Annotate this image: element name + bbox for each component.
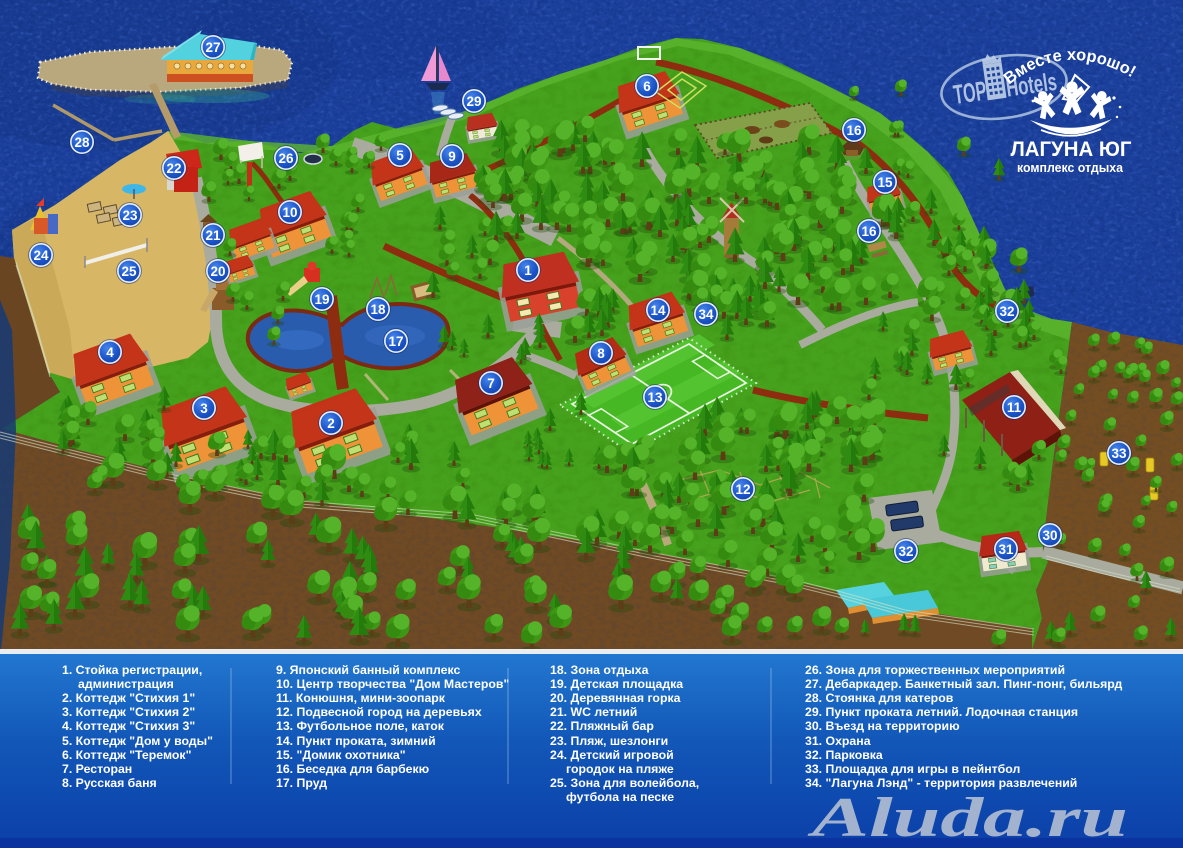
svg-text:30: 30 [1042, 528, 1057, 543]
svg-text:32: 32 [898, 544, 913, 559]
svg-text:23: 23 [122, 208, 138, 223]
svg-text:28. Стоянка для катеров: 28. Стоянка для катеров [805, 691, 954, 705]
svg-text:11: 11 [1007, 400, 1022, 415]
svg-text:12. Подвесной город на деревья: 12. Подвесной город на деревьях [276, 705, 482, 719]
svg-text:23. Пляж, шезлонги: 23. Пляж, шезлонги [550, 734, 668, 748]
svg-text:25. Зона для волейбола,: 25. Зона для волейбола, [550, 776, 699, 790]
svg-text:7. Ресторан: 7. Ресторан [62, 762, 132, 776]
svg-text:4: 4 [106, 345, 114, 360]
svg-text:34: 34 [698, 307, 714, 322]
svg-text:16: 16 [861, 224, 877, 239]
svg-text:14. Пункт проката, зимний: 14. Пункт проката, зимний [276, 734, 436, 748]
svg-text:4. Коттедж "Стихия 3": 4. Коттедж "Стихия 3" [62, 719, 195, 733]
svg-text:7: 7 [487, 376, 495, 391]
svg-text:15. "Домик охотника": 15. "Домик охотника" [276, 748, 406, 762]
svg-text:21: 21 [205, 228, 221, 243]
svg-text:администрация: администрация [78, 677, 174, 691]
svg-text:городок на пляже: городок на пляже [566, 762, 674, 776]
svg-text:5. Коттедж "Дом у воды": 5. Коттедж "Дом у воды" [62, 734, 213, 748]
svg-text:19: 19 [314, 292, 329, 307]
svg-text:2. Коттедж "Стихия 1": 2. Коттедж "Стихия 1" [62, 691, 195, 705]
svg-text:3: 3 [200, 401, 208, 416]
svg-text:20: 20 [210, 264, 225, 279]
svg-text:32. Парковка: 32. Парковка [805, 748, 883, 762]
svg-text:1: 1 [524, 263, 532, 278]
svg-text:17: 17 [388, 334, 403, 349]
svg-text:26. Зона для торжественных мер: 26. Зона для торжественных мероприятий [805, 663, 1065, 677]
svg-text:9. Японский банный комплекс: 9. Японский банный комплекс [276, 663, 461, 677]
svg-text:16: 16 [846, 123, 862, 138]
svg-text:8: 8 [597, 346, 605, 361]
svg-text:24: 24 [33, 248, 49, 263]
svg-text:20. Деревянная горка: 20. Деревянная горка [550, 691, 681, 705]
svg-text:футбола на песке: футбола на песке [566, 790, 674, 804]
svg-text:6. Коттедж "Теремок": 6. Коттедж "Теремок" [62, 748, 192, 762]
svg-text:29. Пункт проката летний. Лодо: 29. Пункт проката летний. Лодочная станц… [805, 705, 1078, 719]
svg-text:6: 6 [643, 79, 651, 94]
svg-text:32: 32 [999, 304, 1014, 319]
svg-text:31. Охрана: 31. Охрана [805, 734, 871, 748]
svg-text:9: 9 [448, 149, 456, 164]
svg-text:26: 26 [278, 151, 294, 166]
svg-text:11. Конюшня, мини-зоопарк: 11. Конюшня, мини-зоопарк [276, 691, 446, 705]
svg-text:27: 27 [205, 40, 220, 55]
svg-text:30. Въезд на территорию: 30. Въезд на территорию [805, 719, 960, 733]
svg-text:19. Детская площадка: 19. Детская площадка [550, 677, 683, 691]
svg-text:25: 25 [121, 264, 137, 279]
svg-text:13: 13 [647, 390, 663, 405]
svg-text:комплекс отдыха: комплекс отдыха [1017, 161, 1124, 175]
svg-text:18. Зона отдыха: 18. Зона отдыха [550, 663, 649, 677]
svg-text:16. Беседка для барбекю: 16. Беседка для барбекю [276, 762, 430, 776]
svg-text:3. Коттедж "Стихия 2": 3. Коттедж "Стихия 2" [62, 705, 195, 719]
svg-text:33. Площадка для игры в пейнтб: 33. Площадка для игры в пейнтбол [805, 762, 1020, 776]
svg-text:18: 18 [370, 302, 386, 317]
svg-text:21. WC летний: 21. WC летний [550, 705, 637, 719]
svg-text:22. Пляжный бар: 22. Пляжный бар [550, 719, 654, 733]
svg-text:22: 22 [166, 161, 181, 176]
svg-text:29: 29 [466, 94, 481, 109]
svg-text:31: 31 [998, 542, 1014, 557]
svg-text:TOP: TOP [952, 76, 989, 110]
svg-text:12: 12 [735, 482, 750, 497]
svg-text:5: 5 [396, 148, 404, 163]
svg-text:13. Футбольное поле, каток: 13. Футбольное поле, каток [276, 719, 445, 733]
svg-text:10. Центр творчества "Дом Маст: 10. Центр творчества "Дом Мастеров" [276, 677, 509, 691]
svg-text:Aluda.ru: Aluda.ru [807, 787, 1128, 848]
svg-text:2: 2 [327, 416, 335, 431]
svg-text:14: 14 [650, 303, 666, 318]
svg-text:33: 33 [1111, 446, 1127, 461]
svg-text:17. Пруд: 17. Пруд [276, 776, 327, 790]
svg-text:8. Русская баня: 8. Русская баня [62, 776, 157, 790]
svg-text:28: 28 [74, 135, 90, 150]
svg-text:10: 10 [282, 205, 297, 220]
svg-text:24. Детский игровой: 24. Детский игровой [550, 748, 674, 762]
svg-text:ЛАГУНА ЮГ: ЛАГУНА ЮГ [1011, 138, 1132, 161]
svg-text:27. Дебаркадер. Банкетный зал.: 27. Дебаркадер. Банкетный зал. Пинг-понг… [805, 677, 1123, 691]
svg-text:1. Стойка регистрации,: 1. Стойка регистрации, [62, 663, 202, 677]
svg-text:15: 15 [877, 175, 893, 190]
